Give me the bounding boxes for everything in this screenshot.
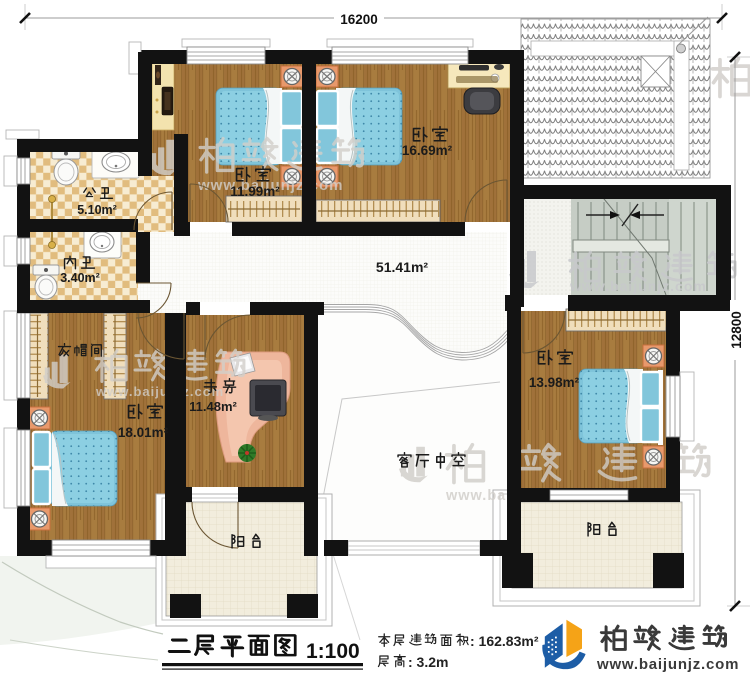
svg-text:13.98m²: 13.98m² (529, 375, 580, 390)
svg-text:5.10m²: 5.10m² (77, 203, 117, 217)
svg-text:: 3.2m: : 3.2m (408, 654, 448, 670)
svg-text:www.baijunjz.com: www.baijunjz.com (596, 656, 739, 673)
svg-text:11.48m²: 11.48m² (189, 399, 237, 414)
svg-text:18.01m²: 18.01m² (118, 425, 169, 440)
svg-text:: 162.83m²: : 162.83m² (470, 633, 539, 649)
svg-text:51.41m²: 51.41m² (376, 259, 428, 275)
svg-text:16.69m²: 16.69m² (402, 143, 453, 158)
svg-text:11.99m²: 11.99m² (230, 184, 280, 199)
svg-text:16200: 16200 (340, 12, 378, 27)
svg-text:www.baijunjz.com: www.baijunjz.com (569, 278, 707, 294)
svg-text:3.40m²: 3.40m² (60, 271, 100, 285)
svg-text:12800: 12800 (729, 311, 744, 349)
svg-text:1:100: 1:100 (306, 640, 360, 663)
